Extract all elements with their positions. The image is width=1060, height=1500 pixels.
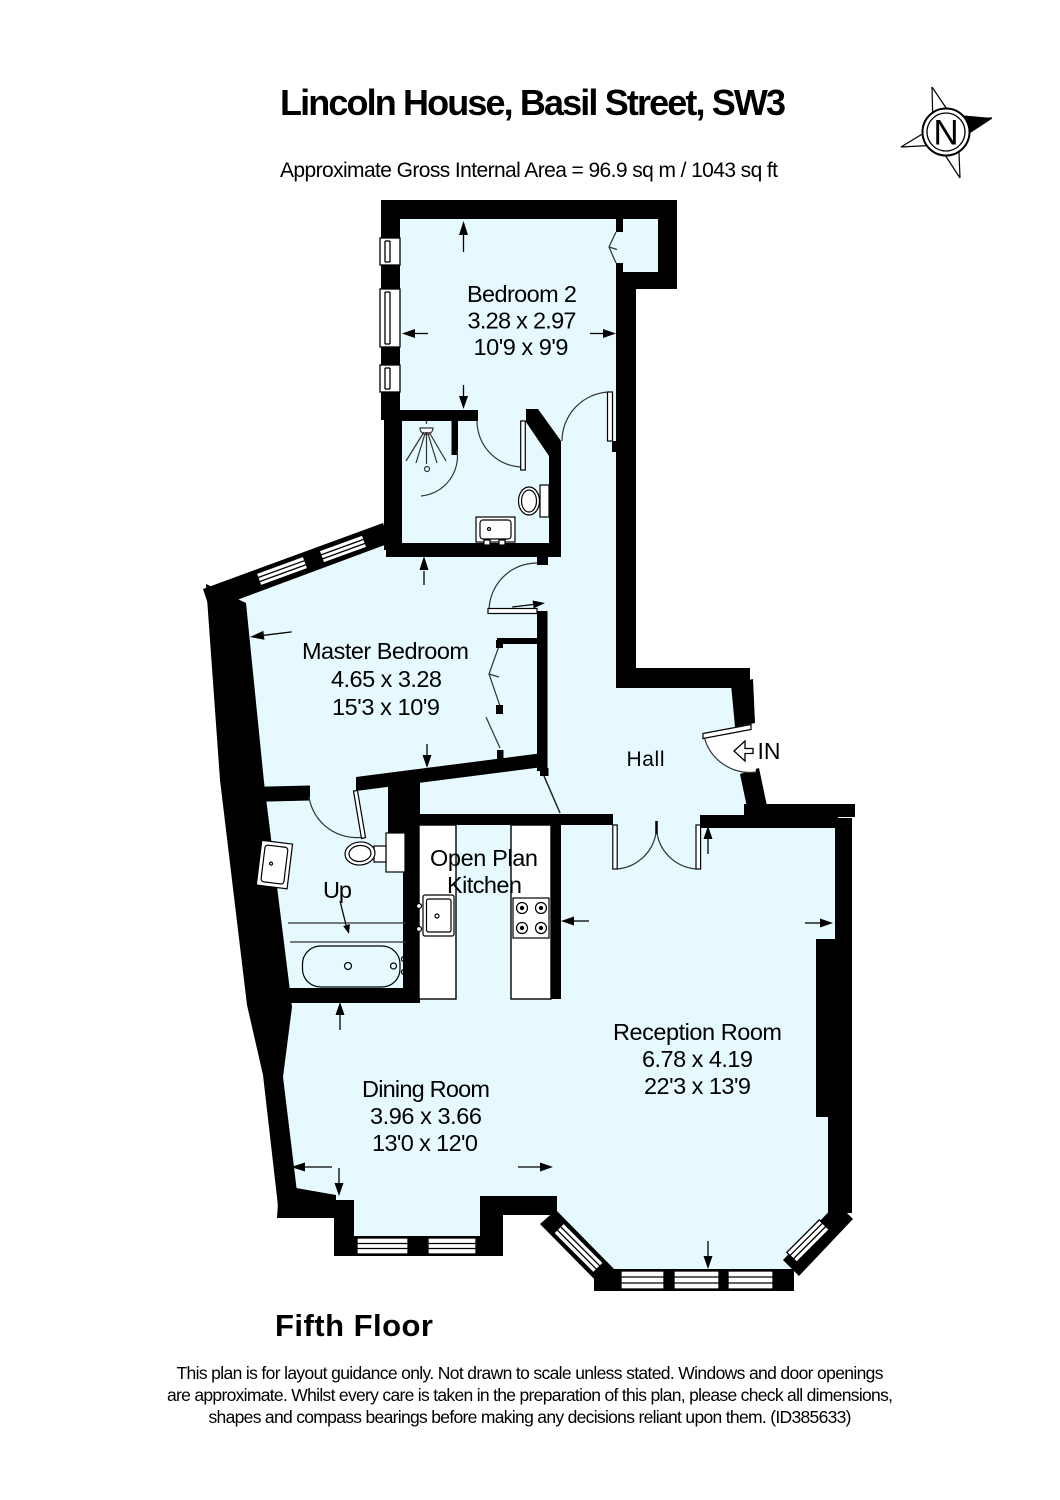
- svg-text:are approximate. Whilst every: are approximate. Whilst every care is ta…: [167, 1385, 893, 1405]
- svg-text:4.65 x 3.28: 4.65 x 3.28: [331, 666, 442, 692]
- svg-text:Hall: Hall: [627, 748, 665, 771]
- svg-text:IN: IN: [758, 738, 781, 764]
- svg-text:Up: Up: [323, 877, 352, 903]
- svg-text:Open Plan: Open Plan: [430, 845, 538, 871]
- svg-text:6.78 x 4.19: 6.78 x 4.19: [642, 1046, 753, 1072]
- svg-text:Bedroom 2: Bedroom 2: [467, 281, 577, 307]
- svg-text:Kitchen: Kitchen: [447, 872, 522, 898]
- svg-text:13'0 x 12'0: 13'0 x 12'0: [372, 1130, 478, 1156]
- svg-text:shapes and compass bearings be: shapes and compass bearings before makin…: [209, 1407, 852, 1427]
- svg-text:This plan is for layout guidan: This plan is for layout guidance only. N…: [177, 1363, 884, 1383]
- svg-text:15'3 x 10'9: 15'3 x 10'9: [332, 694, 440, 720]
- svg-text:Dining Room: Dining Room: [362, 1076, 490, 1102]
- svg-text:10'9 x 9'9: 10'9 x 9'9: [474, 334, 569, 360]
- svg-text:Fifth Floor: Fifth Floor: [275, 1308, 433, 1343]
- svg-text:3.28 x 2.97: 3.28 x 2.97: [468, 308, 577, 334]
- svg-text:Master Bedroom: Master Bedroom: [302, 638, 469, 664]
- svg-text:22'3 x 13'9: 22'3 x 13'9: [644, 1073, 751, 1099]
- svg-text:N: N: [933, 114, 958, 153]
- svg-text:3.96 x 3.66: 3.96 x 3.66: [370, 1103, 482, 1129]
- svg-text:Approximate Gross Internal Are: Approximate Gross Internal Area = 96.9 s…: [280, 159, 778, 182]
- svg-text:Lincoln House, Basil Street, S: Lincoln House, Basil Street, SW3: [280, 82, 786, 123]
- svg-text:Reception Room: Reception Room: [613, 1019, 782, 1045]
